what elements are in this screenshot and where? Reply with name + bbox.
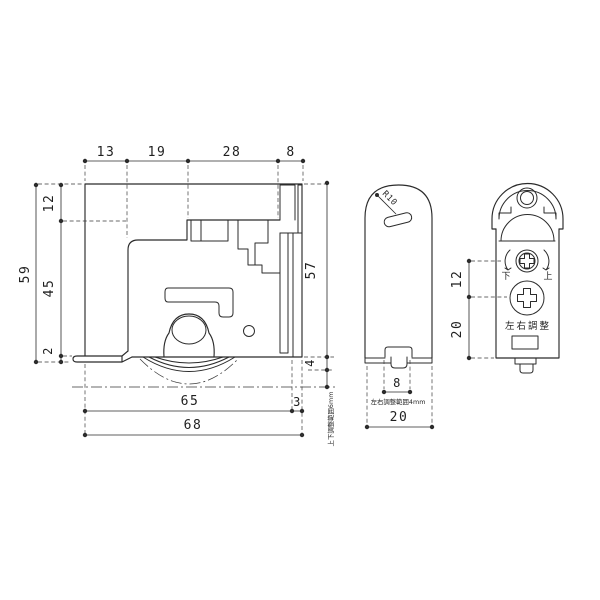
back-labels: 下 上 左右調整 [501,271,552,332]
dim-tab-8: 8 [393,376,401,390]
dim-bottom-3: 3 [293,395,301,409]
back-plate [85,184,302,357]
dim-left-45: 45 [42,279,57,298]
side-part-outline: R10 [365,185,432,368]
back-dimensions: 12 20 [450,259,507,360]
roller-bottom-arcs [143,357,235,372]
screw-hole [244,326,255,337]
label-down: 下 [501,272,510,282]
dim-left-12: 12 [42,194,57,213]
rotate-arrow-right-icon [543,250,549,270]
latch-bar [280,233,288,353]
dim-right-57: 57 [304,261,319,280]
note-vertical-adjust: 上下調整範囲6mm [326,392,335,447]
roller-top-opening [172,316,206,344]
mount-hole-inner [521,192,534,205]
label-up: 上 [543,271,552,282]
vertical-screw-inner [519,253,535,269]
side-base-flange [365,358,432,363]
dome-cover [499,215,555,242]
lateral-screw [510,281,544,315]
roller-housing-dome [164,314,214,357]
back-bottom-tab [515,358,536,373]
adjuster-cap [385,347,412,357]
dim-top-8: 8 [286,145,295,160]
side-note-adjust-range: 左右調整範囲4mm [371,397,426,406]
side-view: R10 8 左右調整範囲4mm 20 [365,185,434,429]
dim-left-2: 2 [41,347,55,355]
dim-top-28: 28 [223,145,242,160]
front-dimensions: 13 19 28 8 59 12 45 2 57 4 上下調整範囲6mm [18,145,335,446]
dim-bottom-68: 68 [184,418,203,433]
front-part-outline [72,184,338,387]
top-slot [383,212,412,228]
back-view: 下 上 左右調整 12 20 [450,184,563,374]
top-strips [280,185,302,233]
dim-back-20: 20 [450,320,465,339]
dim-top-19: 19 [148,145,167,160]
bottom-foot [73,351,132,362]
l-slot [165,288,233,317]
dim-top-13: 13 [97,145,116,160]
technical-drawing-page: 13 19 28 8 59 12 45 2 57 4 上下調整範囲6mm [0,0,600,600]
dim-width-20: 20 [390,410,409,425]
back-body [496,229,559,358]
latch-blocks [191,220,228,241]
front-view: 13 19 28 8 59 12 45 2 57 4 上下調整範囲6mm [18,145,338,446]
radius-label: R10 [380,189,399,208]
dim-bottom-65: 65 [181,394,200,409]
side-dimensions: 8 左右調整範囲4mm 20 [365,360,434,429]
label-lateral-adjust: 左右調整 [505,320,551,332]
dim-right-4: 4 [303,359,317,367]
door-roller-drawing: 13 19 28 8 59 12 45 2 57 4 上下調整範囲6mm [0,0,600,600]
lateral-screw-cross-icon [518,289,537,308]
dim-back-12: 12 [450,270,465,289]
adjuster-tab [391,357,407,368]
label-window [512,336,538,349]
rotate-arrow-left-icon [505,250,511,270]
side-body [365,185,432,358]
vertical-screw-cross-icon [520,254,534,268]
housing-outline [128,220,280,351]
dim-left-59: 59 [18,265,33,284]
latch-steps [238,220,280,273]
housing-right-wall [280,233,302,357]
